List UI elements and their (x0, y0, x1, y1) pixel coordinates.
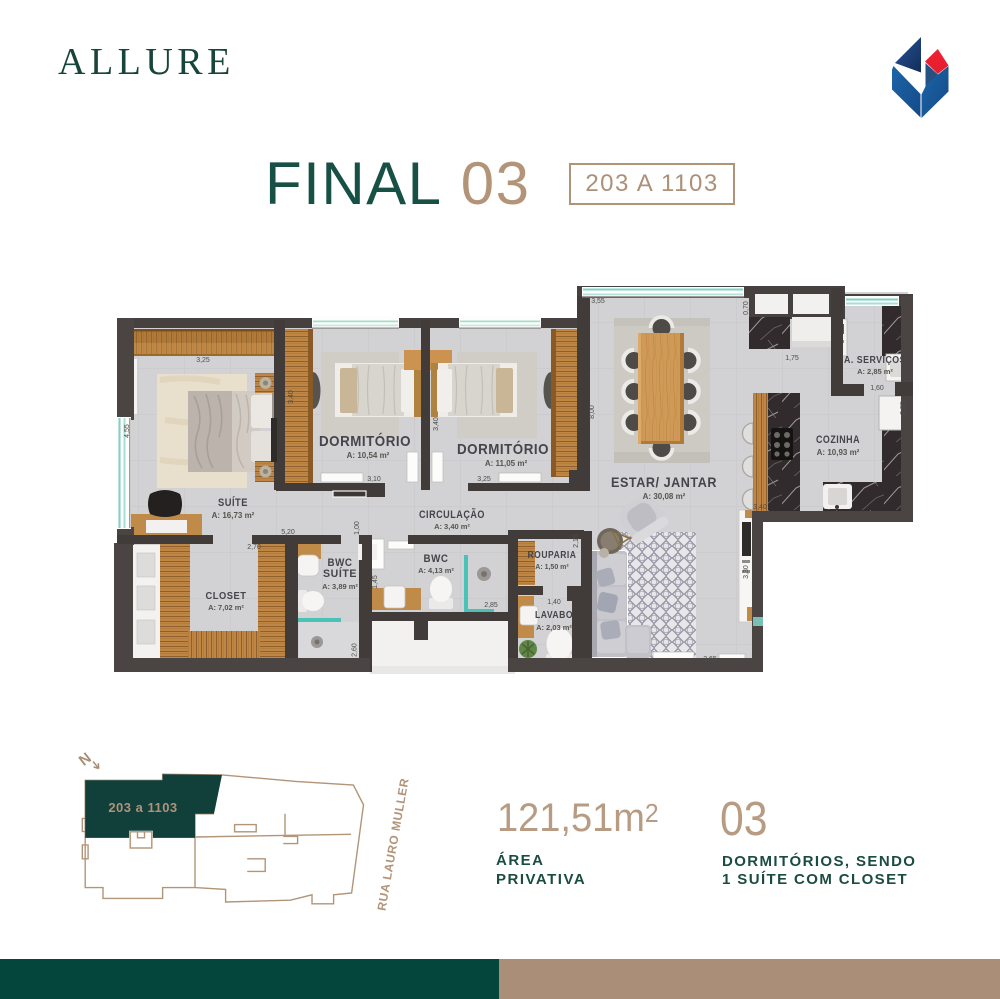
svg-text:N: N (76, 749, 95, 769)
svg-text:203 a 1103: 203 a 1103 (108, 800, 177, 815)
svg-text:RUA LAURO MULLER: RUA LAURO MULLER (374, 777, 411, 912)
